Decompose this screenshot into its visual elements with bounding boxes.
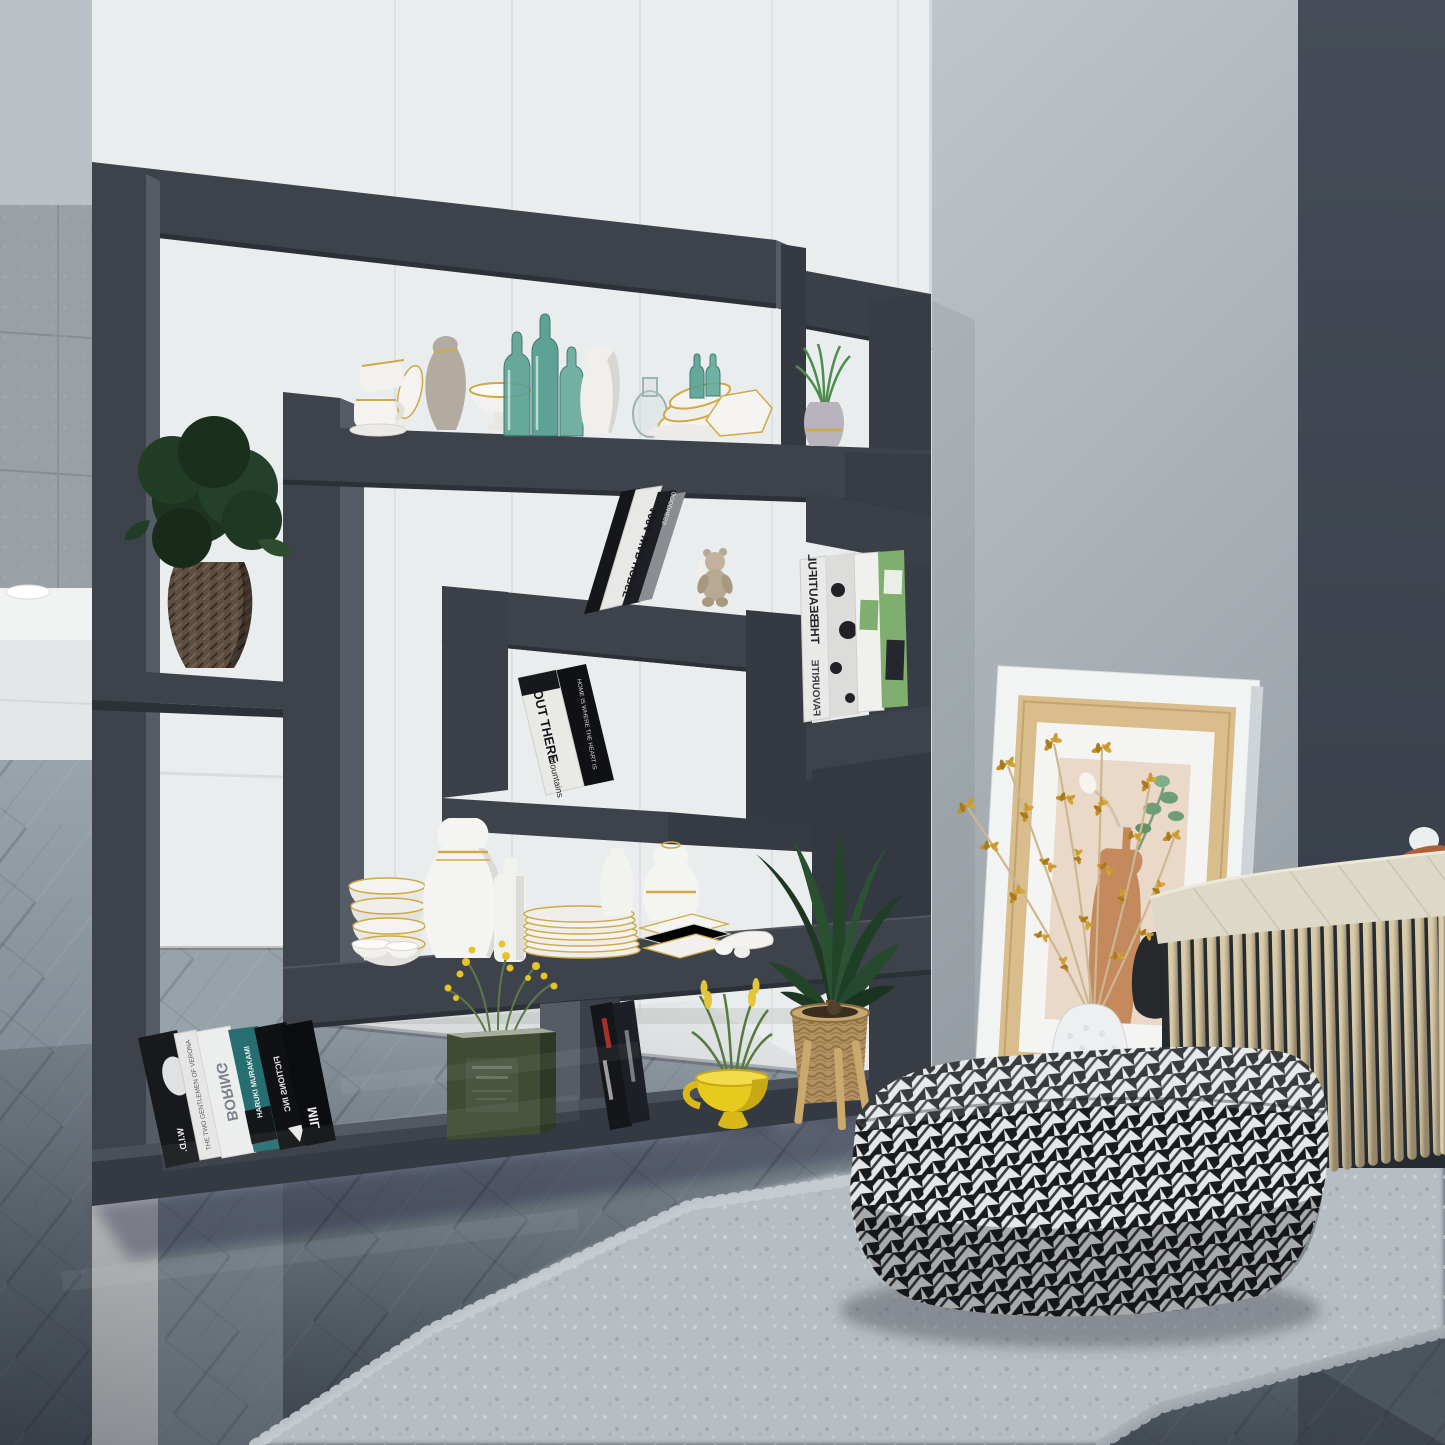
kitchen-counter [0, 585, 92, 760]
shelf-top-divider [781, 244, 806, 452]
shelf-inner-left-post [442, 586, 508, 798]
living-room-scene: 1984 WAR HORSE GOODNESS BEAUTIFUL THE FA… [0, 0, 1445, 1445]
book-title-beautiful: BEAUTIFUL [805, 554, 821, 622]
shelf-wall-shadow [931, 300, 975, 1100]
beautiful-books: BEAUTIFUL THE FAVOURITE [800, 550, 908, 722]
counter-bowl [6, 585, 50, 599]
wall-far-left-top [0, 0, 92, 205]
concrete-wall [0, 205, 92, 588]
book-title-favourite: FAVOURITE [809, 659, 822, 716]
houndstooth-pouf [850, 1047, 1329, 1317]
scene-canvas: 1984 WAR HORSE GOODNESS BEAUTIFUL THE FA… [0, 0, 1445, 1445]
book-title-the: THE [807, 620, 822, 644]
